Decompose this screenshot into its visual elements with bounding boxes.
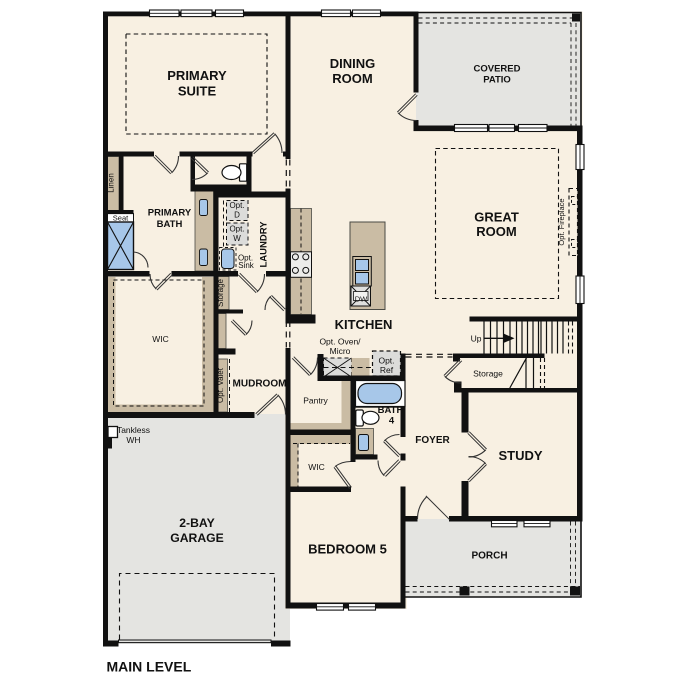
svg-text:Opt.: Opt. <box>229 201 244 210</box>
svg-text:Ref: Ref <box>380 365 394 375</box>
svg-text:LAUNDRY: LAUNDRY <box>259 221 270 268</box>
svg-text:MUDROOM: MUDROOM <box>233 379 287 390</box>
svg-text:Storage: Storage <box>473 369 503 379</box>
svg-text:Opt.: Opt. <box>229 225 244 234</box>
svg-text:PORCH: PORCH <box>471 551 507 562</box>
svg-text:Micro: Micro <box>330 346 351 356</box>
svg-text:KITCHEN: KITCHEN <box>335 317 393 332</box>
svg-text:ROOM: ROOM <box>476 224 516 239</box>
svg-text:STUDY: STUDY <box>498 448 542 463</box>
svg-text:D: D <box>234 210 240 219</box>
svg-text:PATIO: PATIO <box>483 75 511 86</box>
svg-text:Linen: Linen <box>107 173 116 193</box>
svg-text:ROOM: ROOM <box>332 71 372 86</box>
svg-text:PRIMARY: PRIMARY <box>167 68 227 83</box>
svg-text:Up: Up <box>471 333 482 343</box>
svg-text:FOYER: FOYER <box>415 435 450 446</box>
svg-text:DINING: DINING <box>330 56 376 71</box>
svg-text:BATH: BATH <box>157 219 183 230</box>
svg-text:2-BAY: 2-BAY <box>179 516 214 530</box>
svg-text:Storage: Storage <box>216 278 225 307</box>
svg-text:WIC: WIC <box>152 334 169 344</box>
svg-text:Sink: Sink <box>238 261 255 270</box>
svg-text:BEDROOM 5: BEDROOM 5 <box>308 542 387 557</box>
svg-text:WH: WH <box>126 435 140 445</box>
svg-text:Opt. Valet: Opt. Valet <box>216 367 225 403</box>
svg-text:Opt.: Opt. <box>378 356 394 366</box>
svg-text:WIC: WIC <box>308 462 325 472</box>
svg-text:MAIN LEVEL: MAIN LEVEL <box>107 659 192 675</box>
svg-text:COVERED: COVERED <box>474 63 521 74</box>
svg-text:GARAGE: GARAGE <box>170 531 224 545</box>
svg-text:GREAT: GREAT <box>474 210 519 225</box>
svg-text:BATH: BATH <box>378 405 404 416</box>
svg-text:Seat: Seat <box>113 214 129 223</box>
svg-text:PRIMARY: PRIMARY <box>148 208 192 219</box>
svg-text:Pantry: Pantry <box>303 396 328 406</box>
svg-text:4: 4 <box>389 416 395 427</box>
svg-text:Opt. Fireplace: Opt. Fireplace <box>557 198 566 245</box>
svg-text:W: W <box>233 234 241 243</box>
svg-text:DW: DW <box>355 295 368 304</box>
svg-text:SUITE: SUITE <box>178 84 217 99</box>
svg-text:Tankless: Tankless <box>117 425 150 435</box>
